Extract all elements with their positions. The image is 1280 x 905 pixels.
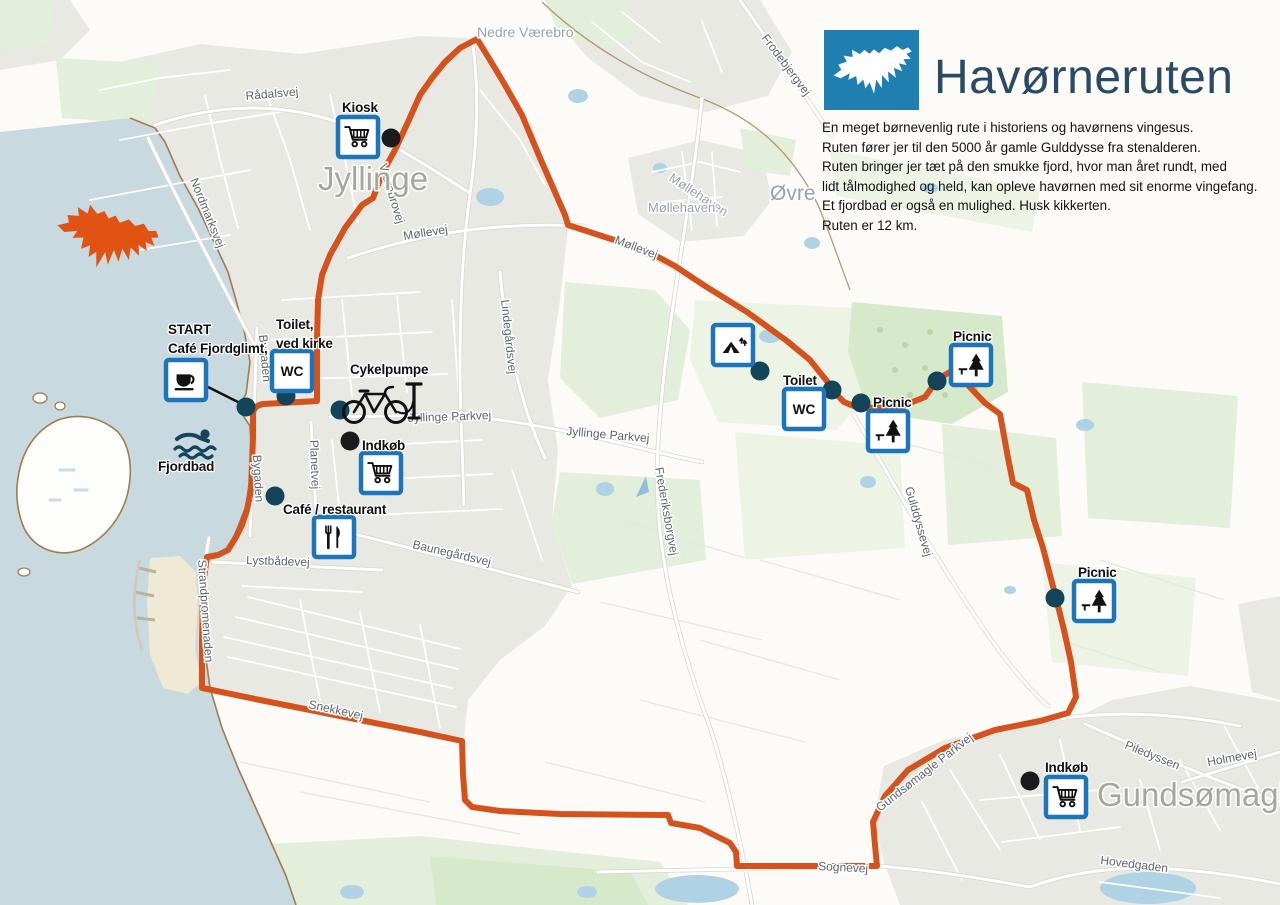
poi-label: Toilet [783, 373, 818, 388]
poi-box [868, 411, 908, 451]
poi-dot [341, 432, 360, 451]
road-label: Lystbådevej [246, 553, 310, 569]
poi-label: Café Fjordglimt, [168, 341, 268, 356]
description-line: Et fjordbad er også en mulighed. Husk ki… [822, 196, 1257, 216]
place-label: Jyllinge [318, 160, 428, 197]
poi-box [1074, 581, 1114, 621]
poi-label: START [168, 322, 212, 337]
poi-label: Café / restaurant [283, 502, 387, 517]
description-line: lidt tålmodighed og held, kan opleve hav… [822, 177, 1257, 197]
description-line: Ruten bringer jer tæt på den smukke fjor… [822, 157, 1257, 177]
poi-label: Toilet, [276, 317, 313, 332]
poi-box [951, 345, 991, 385]
wc-icon [281, 364, 304, 379]
page-title: Havørneruten [934, 50, 1233, 105]
eagle-logo [824, 30, 919, 110]
description-line: Ruten fører jer til den 5000 år gamle Gu… [822, 138, 1257, 158]
poi-label: Fjordbad [158, 459, 214, 474]
poi-dot [266, 487, 285, 506]
wc-icon [793, 402, 816, 417]
poi-dot [928, 372, 947, 391]
route-description: En meget børnevenlig rute i historiens o… [822, 118, 1257, 235]
poi-dot [852, 394, 871, 413]
road-label: Planetvej [307, 440, 323, 490]
poi-label: Picnic [873, 395, 912, 410]
poi-label: ved kirke [276, 336, 333, 351]
poi-label: Indkøb [362, 438, 405, 453]
road-label: Bygaden [250, 454, 266, 502]
place-label: Gundsømagle [1097, 776, 1280, 813]
poi-label: Kiosk [342, 100, 378, 115]
poi-box [314, 517, 354, 557]
poi-label: Picnic [1078, 565, 1117, 580]
road-label: Jyllinge Parkvej [408, 408, 492, 425]
description-line: Ruten er 12 km. [822, 216, 1257, 236]
poi-label: Cykelpumpe [350, 362, 429, 377]
description-line: En meget børnevenlig rute i historiens o… [822, 118, 1257, 138]
place-label: Øvre [770, 182, 816, 205]
road-label: Sognevej [818, 859, 869, 876]
poi-label: Picnic [953, 329, 992, 344]
place-label: Møllehaven [648, 200, 715, 215]
poi-dot [1021, 772, 1040, 791]
place-label: Nedre Værebro [477, 24, 574, 40]
poi-dot [237, 398, 256, 417]
poi-dot [382, 129, 401, 148]
poi-label: Indkøb [1045, 760, 1088, 775]
poi-dot [1046, 589, 1065, 608]
